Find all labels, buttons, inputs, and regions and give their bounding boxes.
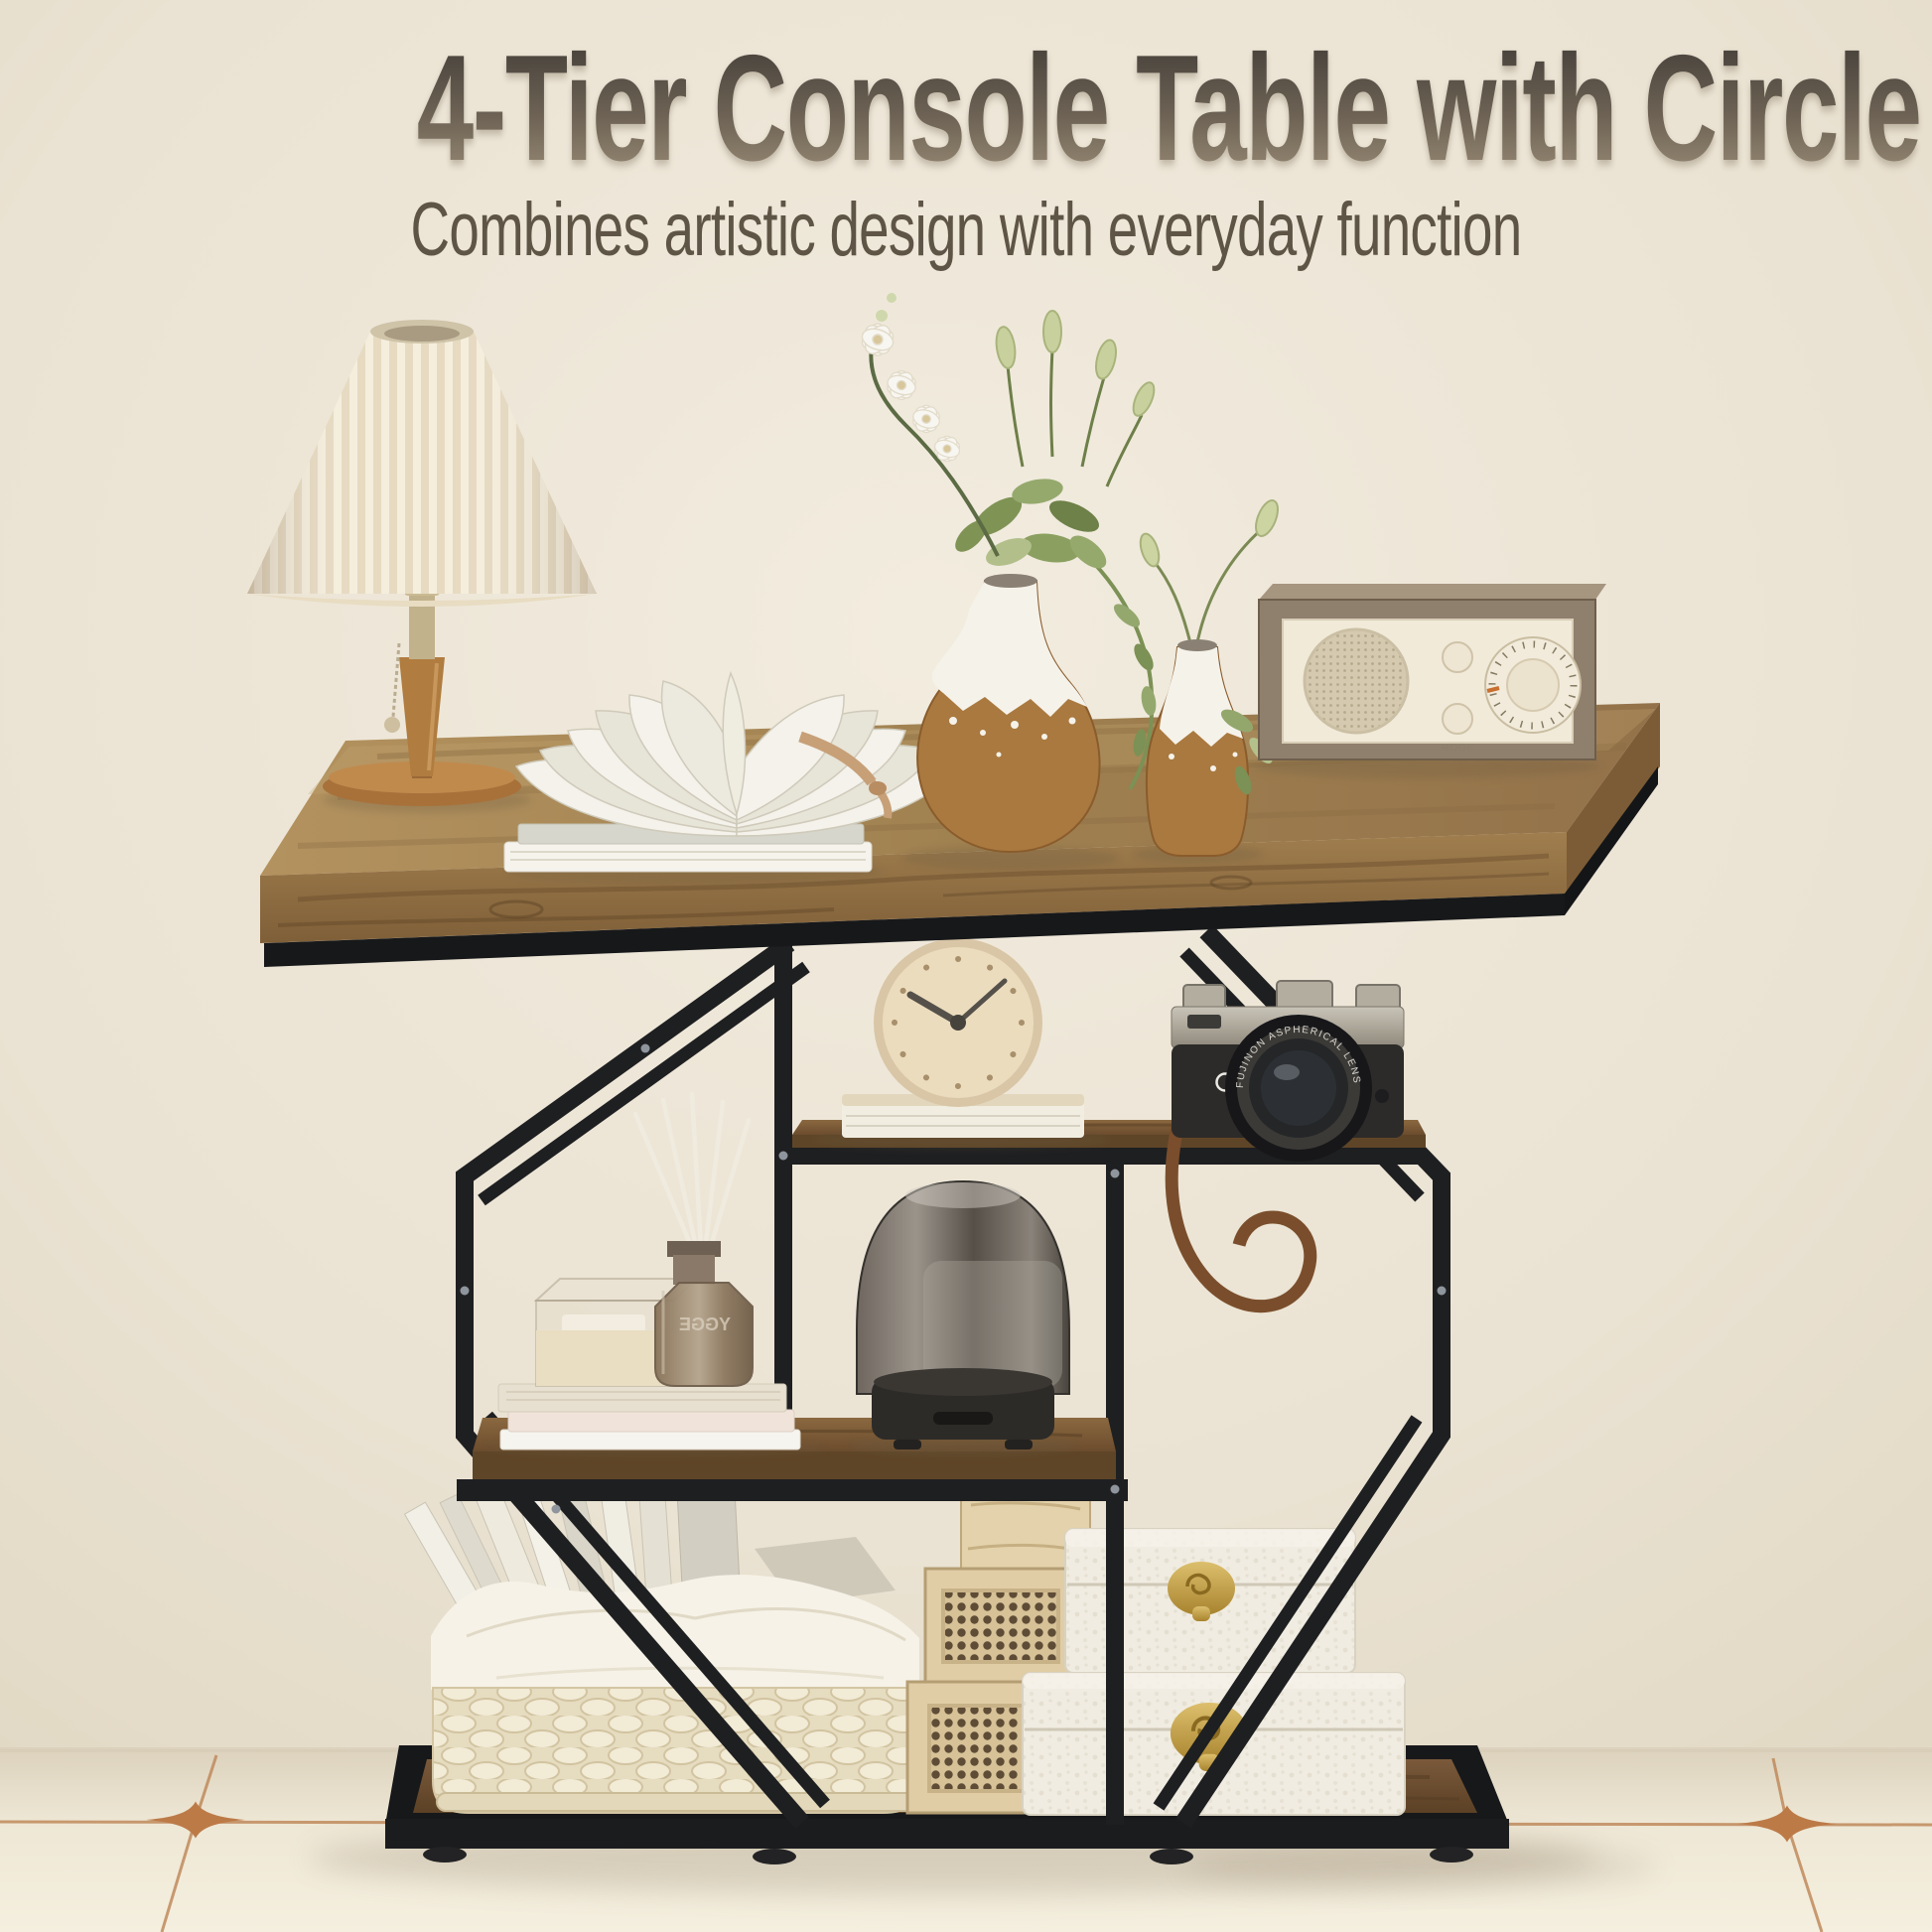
crate-top xyxy=(925,1569,1076,1682)
product-photo: FUJINON ASPHERICAL LENS xyxy=(0,0,1932,1932)
book-stack xyxy=(498,1384,800,1449)
base-foot xyxy=(423,1847,467,1863)
diffuser-bottle xyxy=(655,1283,753,1386)
center-post xyxy=(774,941,792,1453)
radio-speaker xyxy=(1305,629,1408,733)
radio-mode-label: MODE xyxy=(1441,743,1474,754)
humidifier xyxy=(857,1181,1069,1449)
tier3-frame-bar xyxy=(457,1479,1128,1501)
retro-radio: MODE xyxy=(1259,584,1606,759)
base-foot xyxy=(1430,1847,1473,1863)
table-clock xyxy=(874,938,1042,1107)
diffuser-brand-label: YGGE xyxy=(679,1314,731,1334)
radio-knob-lower xyxy=(1443,704,1472,734)
base-foot xyxy=(753,1849,796,1864)
radio-knob-upper xyxy=(1443,642,1472,672)
base-foot xyxy=(1150,1849,1193,1864)
jewelry-box-bottom xyxy=(1023,1673,1405,1815)
